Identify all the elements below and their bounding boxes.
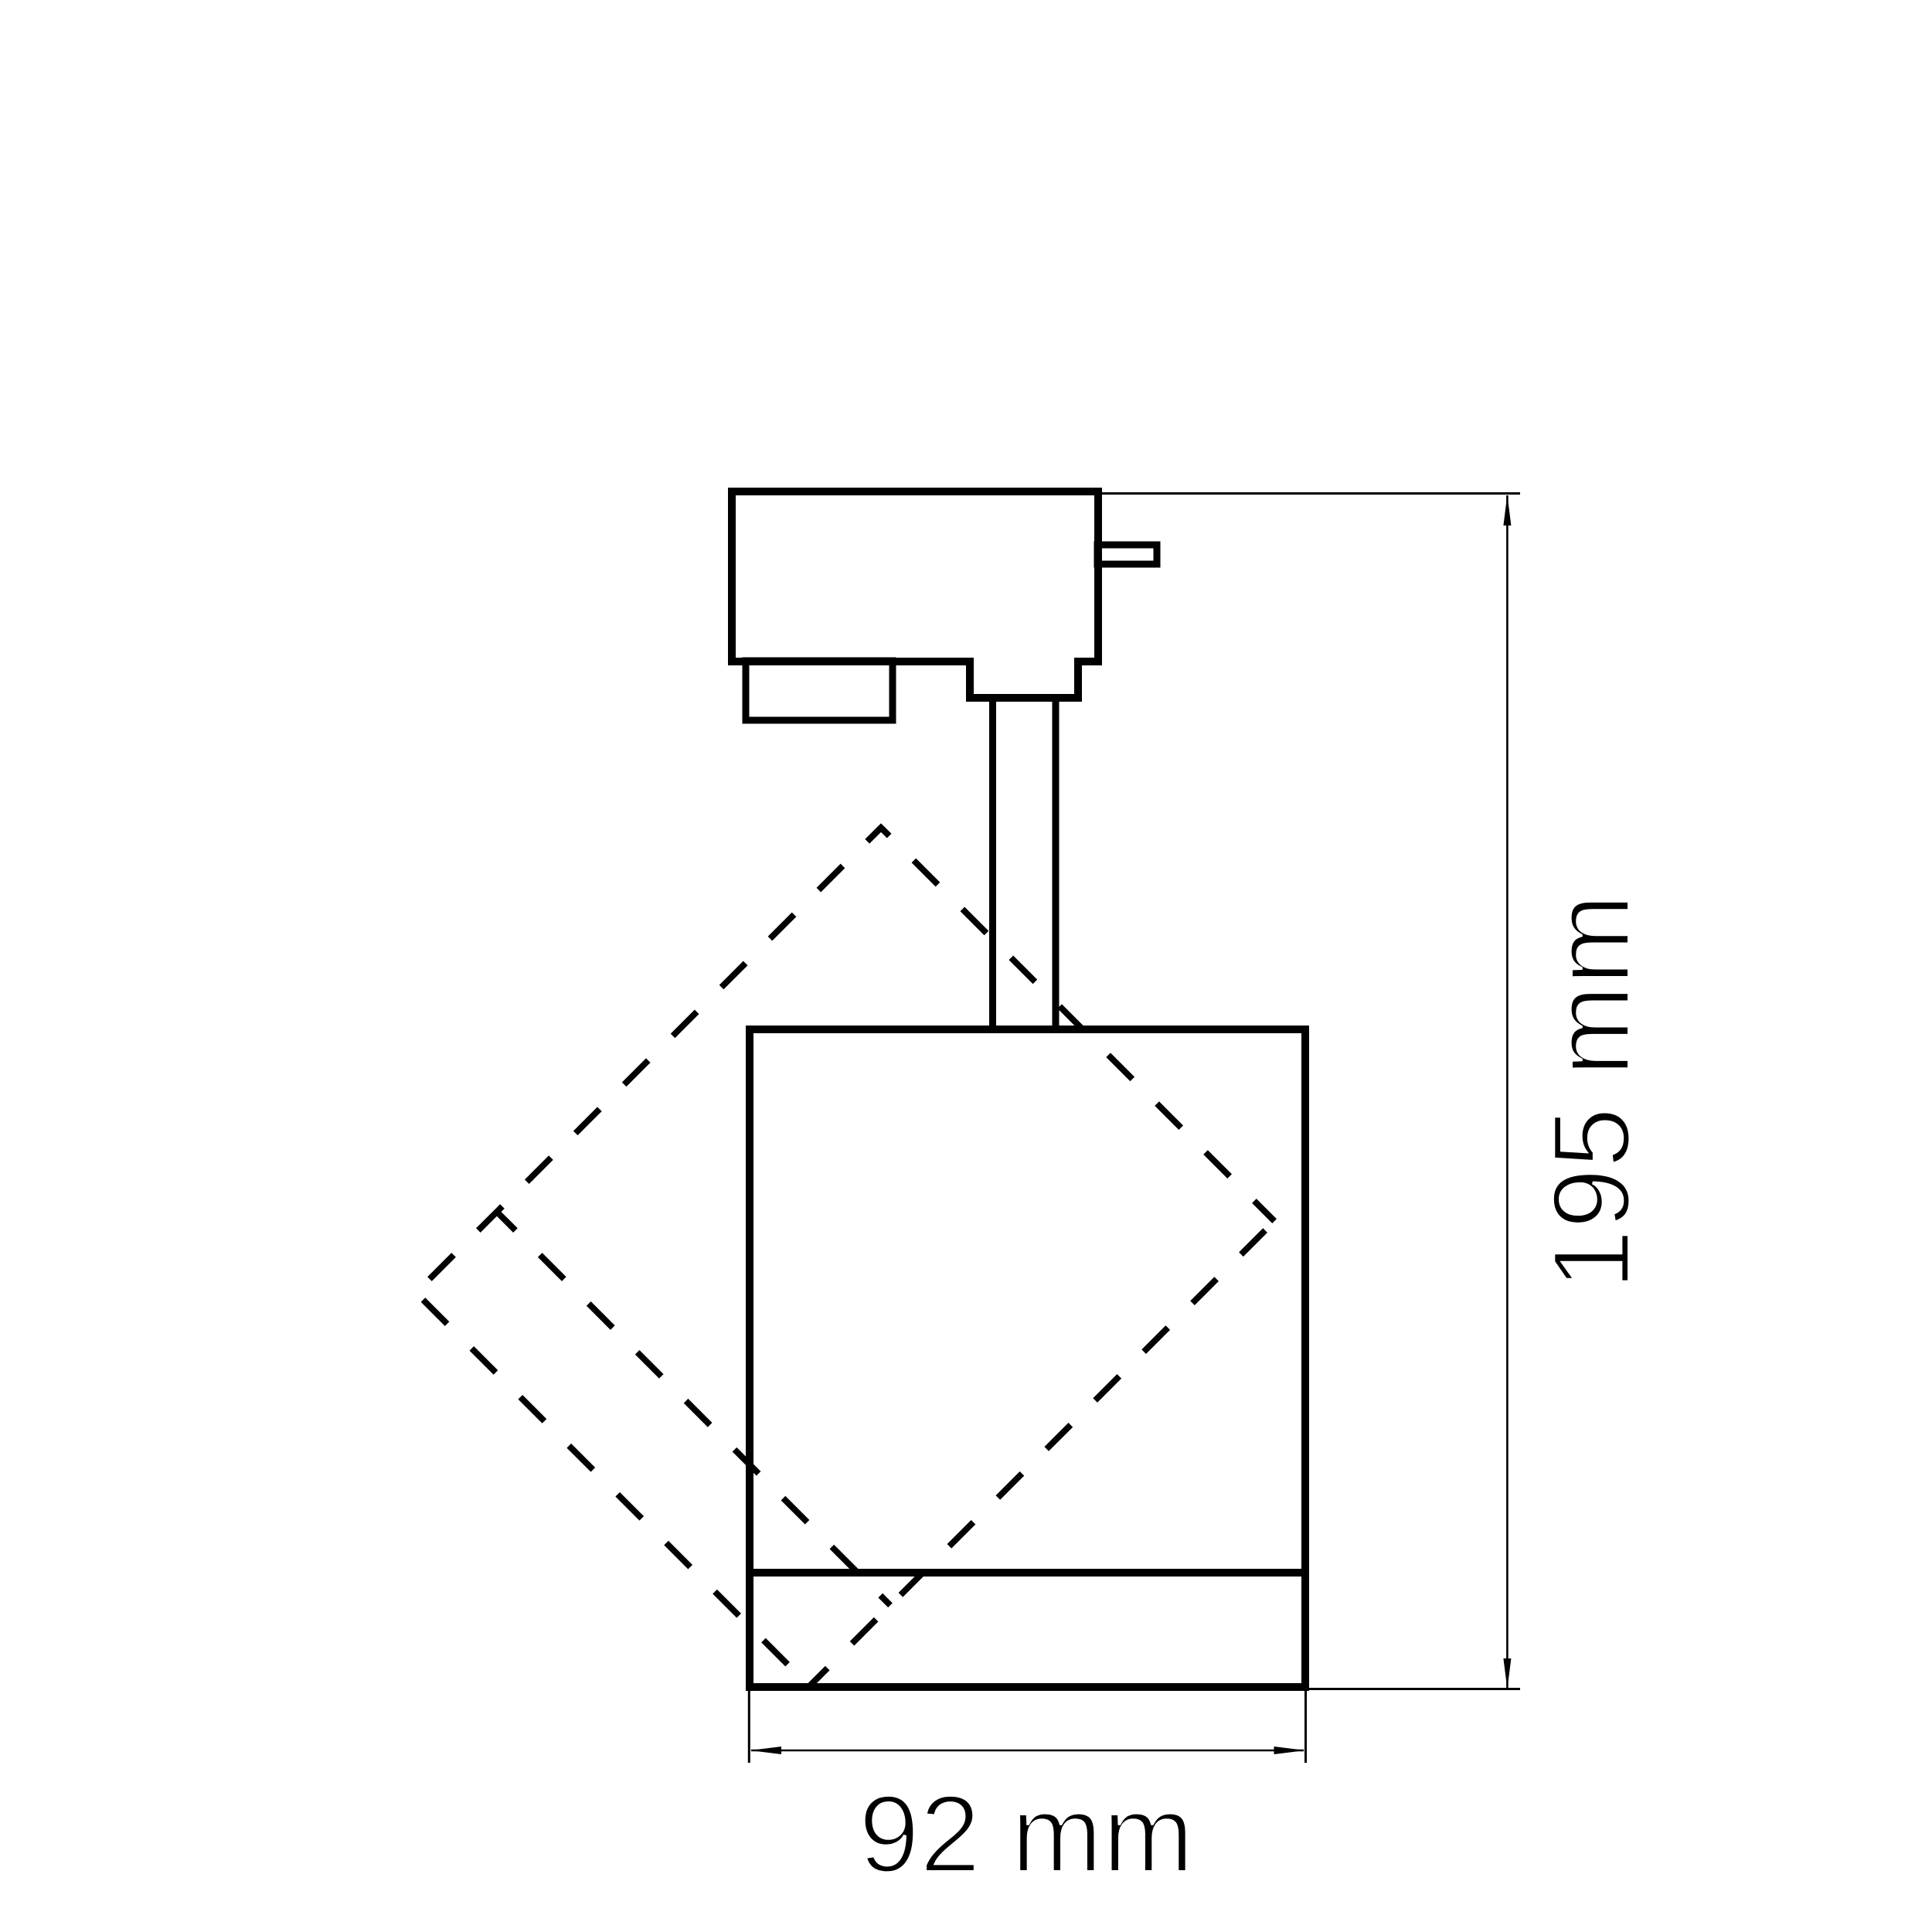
svg-text:195 mm: 195 mm: [1530, 894, 1653, 1291]
svg-text:92 mm: 92 mm: [859, 1773, 1194, 1896]
